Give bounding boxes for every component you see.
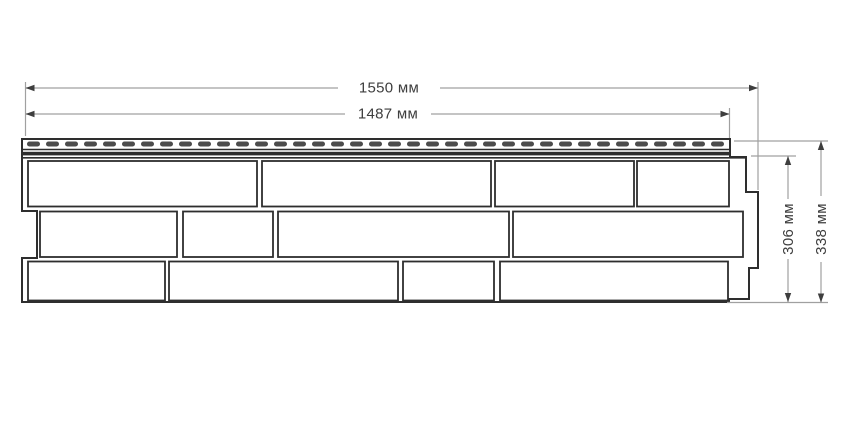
nail-slot xyxy=(597,142,610,147)
nailing-strip-slots xyxy=(27,142,724,147)
dim-panel-field-height-label: 306 мм xyxy=(780,203,797,255)
nail-slot xyxy=(407,142,420,147)
brick xyxy=(500,262,728,301)
brick xyxy=(262,161,491,207)
nail-slot xyxy=(654,142,667,147)
brick xyxy=(637,161,729,207)
nail-slot xyxy=(293,142,306,147)
siding-panel-technical-drawing: 1550 мм 1487 мм 306 мм 338 мм xyxy=(0,0,850,425)
brick xyxy=(403,262,494,301)
nail-slot xyxy=(692,142,705,147)
nail-slot xyxy=(483,142,496,147)
nail-slot xyxy=(65,142,78,147)
nail-slot xyxy=(711,142,724,147)
brick xyxy=(169,262,398,301)
nail-slot xyxy=(27,142,40,147)
nail-slot xyxy=(122,142,135,147)
nail-slot xyxy=(369,142,382,147)
nail-slot xyxy=(103,142,116,147)
nail-slot xyxy=(388,142,401,147)
nail-slot xyxy=(331,142,344,147)
nail-slot xyxy=(578,142,591,147)
nail-slot xyxy=(255,142,268,147)
brick xyxy=(278,212,509,258)
nail-slot xyxy=(312,142,325,147)
nail-slot xyxy=(141,142,154,147)
nail-slot xyxy=(236,142,249,147)
brick xyxy=(495,161,634,207)
nail-slot xyxy=(198,142,211,147)
nail-slot xyxy=(616,142,629,147)
dim-total-height-label: 338 мм xyxy=(813,203,830,255)
nail-slot xyxy=(160,142,173,147)
brick xyxy=(28,161,257,207)
dim-nailing-strip-width-label: 1487 мм xyxy=(358,106,418,123)
brick xyxy=(28,262,165,301)
nail-slot xyxy=(673,142,686,147)
nail-slot xyxy=(274,142,287,147)
nail-slot xyxy=(540,142,553,147)
nail-slot xyxy=(502,142,515,147)
dim-nailing-strip-width: 1487 мм xyxy=(26,106,730,139)
nail-slot xyxy=(445,142,458,147)
nail-slot xyxy=(464,142,477,147)
nail-slot xyxy=(84,142,97,147)
nail-slot xyxy=(559,142,572,147)
strip-lock-band xyxy=(22,152,730,156)
nail-slot xyxy=(521,142,534,147)
brick xyxy=(513,212,743,258)
brick xyxy=(40,212,177,258)
nail-slot xyxy=(179,142,192,147)
diagram-canvas: 1550 мм 1487 мм 306 мм 338 мм xyxy=(0,0,850,425)
nail-slot xyxy=(217,142,230,147)
nail-slot xyxy=(426,142,439,147)
nail-slot xyxy=(350,142,363,147)
brick xyxy=(183,212,273,258)
nail-slot xyxy=(635,142,648,147)
dim-total-width-label: 1550 мм xyxy=(359,80,419,97)
nail-slot xyxy=(46,142,59,147)
